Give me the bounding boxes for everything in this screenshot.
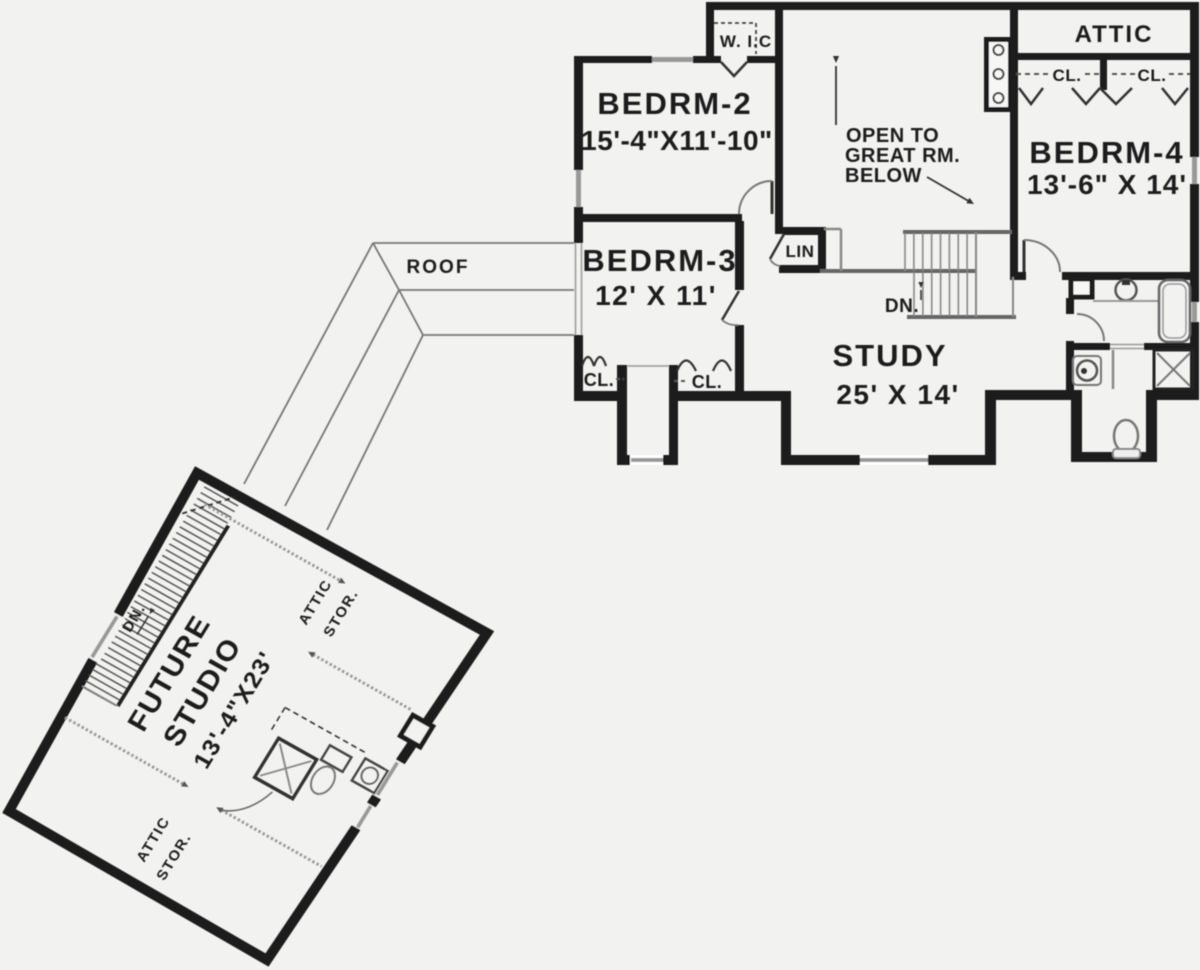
svg-text:CL.: CL.	[584, 370, 615, 390]
svg-text:BEDRM-2: BEDRM-2	[597, 86, 752, 121]
svg-text:DN.: DN.	[885, 296, 919, 317]
svg-text:ATTIC: ATTIC	[1075, 21, 1154, 48]
svg-text:BELOW: BELOW	[845, 165, 922, 187]
svg-text:OPEN TO: OPEN TO	[846, 125, 939, 147]
svg-text:ROOF: ROOF	[407, 257, 470, 278]
svg-text:W. I.C: W. I.C	[720, 32, 772, 51]
svg-text:BEDRM-3: BEDRM-3	[582, 243, 737, 278]
svg-text:15'-4"X11'-10": 15'-4"X11'-10"	[581, 125, 773, 156]
svg-text:CL.: CL.	[1138, 66, 1167, 85]
svg-text:CL.: CL.	[692, 372, 723, 392]
svg-text:LIN: LIN	[786, 242, 815, 261]
svg-text:STUDY: STUDY	[832, 338, 947, 373]
svg-text:12' X 11': 12' X 11'	[595, 280, 717, 311]
svg-text:13'-6" X 14': 13'-6" X 14'	[1027, 169, 1187, 200]
svg-text:BEDRM-4: BEDRM-4	[1029, 135, 1184, 170]
svg-text:25' X 14': 25' X 14'	[836, 379, 959, 410]
svg-text:GREAT RM.: GREAT RM.	[845, 145, 960, 167]
svg-text:CL.: CL.	[1053, 66, 1082, 85]
